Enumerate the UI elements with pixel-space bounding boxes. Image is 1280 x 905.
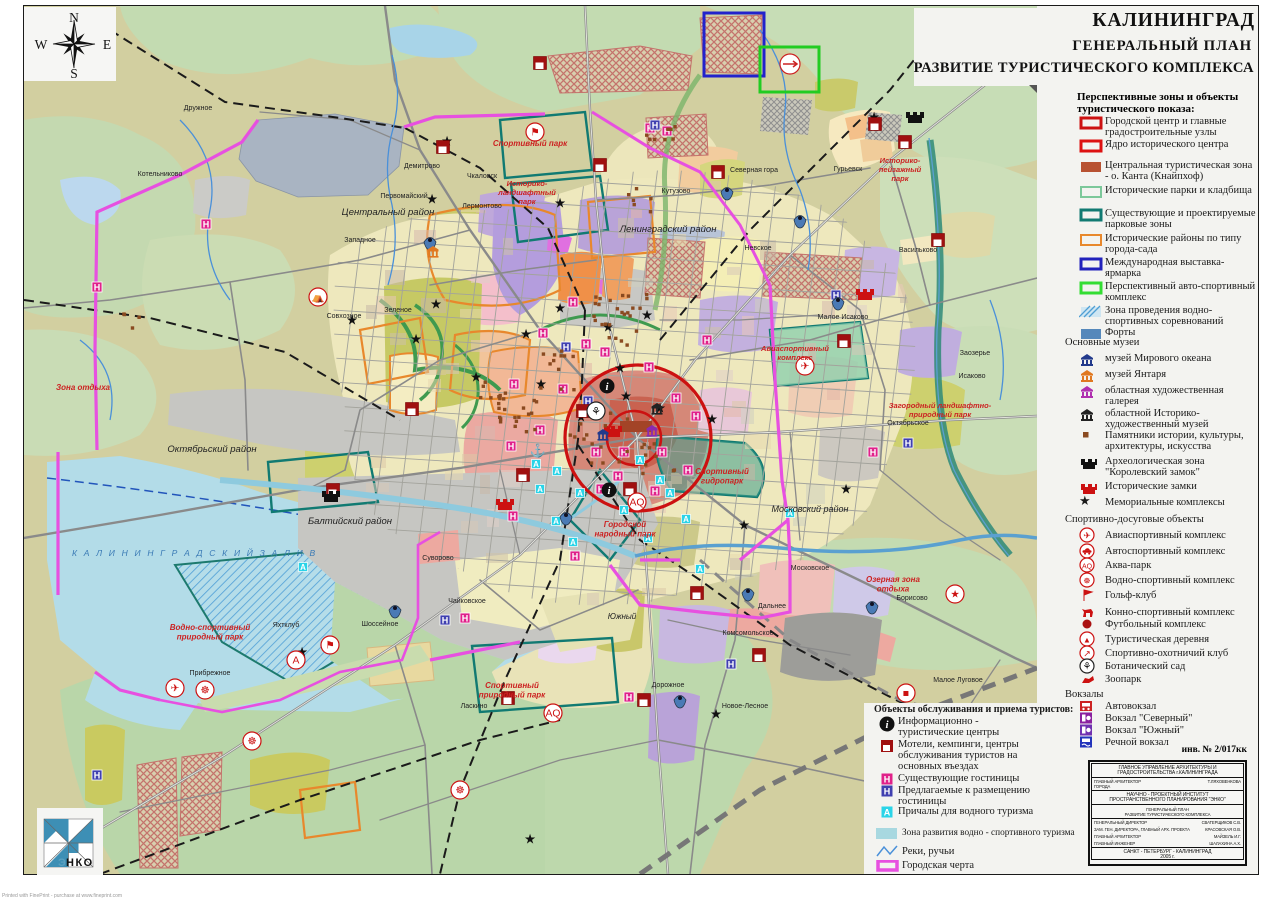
svg-text:H: H bbox=[508, 442, 515, 452]
svg-text:★: ★ bbox=[641, 308, 653, 323]
svg-text:★: ★ bbox=[524, 832, 536, 847]
svg-text:Шоссейное: Шоссейное bbox=[362, 620, 399, 628]
svg-text:H: H bbox=[693, 412, 700, 422]
svg-text:H: H bbox=[442, 616, 449, 626]
svg-text:Малое Луговое: Малое Луговое bbox=[933, 677, 983, 684]
svg-text:⚑: ⚑ bbox=[325, 640, 334, 651]
svg-text:Васильково: Васильково bbox=[899, 247, 937, 254]
svg-text:☸: ☸ bbox=[200, 685, 209, 696]
svg-text:H: H bbox=[537, 426, 544, 436]
svg-text:⚑: ⚑ bbox=[530, 127, 539, 138]
svg-text:Комсомольское: Комсомольское bbox=[723, 630, 774, 637]
svg-text:★: ★ bbox=[554, 301, 566, 316]
svg-text:природный парк: природный парк bbox=[177, 633, 244, 642]
svg-text:AQ: AQ bbox=[1082, 563, 1093, 570]
svg-text:H: H bbox=[883, 787, 890, 797]
svg-text:Дружное: Дружное bbox=[184, 105, 213, 112]
svg-text:A: A bbox=[657, 476, 663, 485]
svg-text:H: H bbox=[652, 121, 659, 131]
svg-text:A: A bbox=[683, 515, 689, 524]
svg-text:★: ★ bbox=[554, 196, 566, 211]
svg-text:Московское: Московское bbox=[791, 565, 830, 572]
svg-text:природный парк: природный парк bbox=[479, 691, 546, 700]
svg-text:☸: ☸ bbox=[455, 785, 464, 796]
svg-text:★: ★ bbox=[840, 482, 852, 497]
svg-text:H: H bbox=[462, 614, 469, 624]
svg-text:★: ★ bbox=[602, 320, 614, 335]
svg-text:AQ: AQ bbox=[630, 497, 645, 508]
svg-text:H: H bbox=[646, 363, 653, 373]
svg-text:A: A bbox=[621, 506, 627, 515]
svg-text:Совхозное: Совхозное bbox=[327, 313, 362, 320]
svg-text:отдыха: отдыха bbox=[877, 585, 910, 594]
svg-text:парк: парк bbox=[518, 197, 536, 206]
svg-text:H: H bbox=[203, 220, 210, 230]
svg-text:★: ★ bbox=[950, 589, 959, 600]
svg-text:Авиаспортивный: Авиаспортивный bbox=[760, 344, 829, 353]
svg-text:Историко-: Историко- bbox=[507, 179, 548, 188]
svg-text:Спортивный парк: Спортивный парк bbox=[493, 139, 568, 148]
svg-text:★: ★ bbox=[430, 297, 442, 312]
svg-text:Октябрьский район: Октябрьский район bbox=[167, 444, 257, 455]
svg-text:✈: ✈ bbox=[1083, 530, 1091, 540]
svg-text:⚘: ⚘ bbox=[591, 406, 601, 418]
svg-text:Исаково: Исаково bbox=[959, 373, 986, 380]
svg-text:H: H bbox=[511, 380, 518, 390]
svg-text:H: H bbox=[94, 283, 101, 293]
svg-text:H: H bbox=[659, 448, 666, 458]
svg-text:Ленинградский район: Ленинградский район bbox=[619, 224, 718, 235]
svg-text:Невское: Невское bbox=[744, 245, 771, 252]
svg-text:Кутузово: Кутузово bbox=[662, 188, 691, 195]
svg-text:★: ★ bbox=[426, 192, 438, 207]
svg-text:H: H bbox=[593, 448, 600, 458]
svg-text:A: A bbox=[637, 456, 643, 465]
svg-text:★: ★ bbox=[620, 389, 632, 404]
svg-text:A: A bbox=[667, 489, 673, 498]
svg-text:Дальнее: Дальнее bbox=[758, 603, 786, 610]
svg-text:H: H bbox=[626, 693, 633, 703]
svg-text:Западное: Западное bbox=[344, 237, 376, 244]
svg-text:комплекс: комплекс bbox=[777, 353, 813, 362]
svg-text:народный парк: народный парк bbox=[594, 530, 656, 539]
svg-text:H: H bbox=[905, 439, 912, 449]
svg-text:Демитрово: Демитрово bbox=[404, 163, 440, 170]
svg-text:H: H bbox=[652, 487, 659, 497]
svg-text:H: H bbox=[870, 448, 877, 458]
svg-text:природный парк: природный парк bbox=[909, 410, 972, 419]
svg-text:Южный: Южный bbox=[608, 612, 637, 621]
svg-text:★: ★ bbox=[614, 361, 626, 376]
svg-text:H: H bbox=[883, 775, 890, 785]
svg-text:☸: ☸ bbox=[247, 736, 256, 747]
svg-text:S: S bbox=[70, 66, 78, 81]
svg-text:Чкаловск: Чкаловск bbox=[467, 173, 498, 180]
svg-text:Московский район: Московский район bbox=[772, 504, 849, 514]
svg-text:Яхтклуб: Яхтклуб bbox=[273, 621, 300, 629]
svg-text:■: ■ bbox=[903, 688, 909, 699]
svg-text:Ласкино: Ласкино bbox=[461, 703, 488, 710]
svg-text:H: H bbox=[685, 466, 692, 476]
svg-text:Гурьевск: Гурьевск bbox=[834, 166, 863, 173]
svg-text:Загородный ландшафтно-: Загородный ландшафтно- bbox=[889, 401, 992, 410]
svg-text:☸: ☸ bbox=[1083, 576, 1090, 585]
svg-text:К А Л И Н И Н Г Р А Д С К И Й: К А Л И Н И Н Г Р А Д С К И Й З А Л И В bbox=[72, 547, 317, 558]
svg-text:Борисово: Борисово bbox=[896, 595, 927, 602]
svg-text:H: H bbox=[563, 343, 570, 353]
svg-text:AQ: AQ bbox=[546, 708, 561, 719]
svg-text:✈: ✈ bbox=[171, 683, 180, 694]
svg-text:▲: ▲ bbox=[1083, 635, 1091, 644]
svg-text:A: A bbox=[570, 538, 576, 547]
svg-text:Историко-: Историко- bbox=[880, 156, 921, 165]
svg-text:Северная гора: Северная гора bbox=[730, 167, 778, 174]
svg-text:H: H bbox=[94, 771, 101, 781]
svg-text:Спортивный: Спортивный bbox=[695, 467, 749, 476]
svg-text:Чайковское: Чайковское bbox=[448, 597, 486, 605]
svg-text:A: A bbox=[577, 489, 583, 498]
svg-text:Лермонтово: Лермонтово bbox=[462, 203, 502, 210]
svg-text:H: H bbox=[728, 660, 735, 670]
svg-text:Дорожное: Дорожное bbox=[652, 682, 685, 689]
svg-text:H: H bbox=[583, 340, 590, 350]
svg-text:H: H bbox=[570, 298, 577, 308]
svg-text:Спортивный: Спортивный bbox=[485, 681, 539, 690]
svg-text:Центральный район: Центральный район bbox=[342, 207, 436, 218]
svg-text:Котельниково: Котельниково bbox=[138, 171, 183, 178]
svg-text:Озерная зона: Озерная зона bbox=[866, 575, 920, 584]
svg-text:↗: ↗ bbox=[1083, 648, 1091, 658]
svg-text:A: A bbox=[553, 517, 559, 526]
svg-text:★: ★ bbox=[410, 332, 422, 347]
svg-text:★: ★ bbox=[738, 518, 750, 533]
svg-text:A: A bbox=[300, 563, 306, 572]
svg-text:H: H bbox=[602, 348, 609, 358]
svg-text:гидропарк: гидропарк bbox=[701, 477, 744, 486]
svg-text:A: A bbox=[537, 485, 543, 494]
svg-text:W: W bbox=[35, 37, 48, 52]
svg-text:H: H bbox=[704, 336, 711, 346]
svg-text:A: A bbox=[883, 808, 890, 818]
svg-text:H: H bbox=[540, 329, 547, 339]
svg-text:Первомайский: Первомайский bbox=[380, 192, 427, 200]
svg-text:ландшафтный: ландшафтный bbox=[497, 188, 556, 197]
svg-text:★: ★ bbox=[706, 412, 718, 427]
svg-text:H: H bbox=[510, 512, 517, 522]
svg-text:Городской: Городской bbox=[604, 520, 647, 529]
svg-text:A: A bbox=[697, 565, 703, 574]
svg-text:НКО: НКО bbox=[66, 857, 94, 869]
svg-text:Э: Э bbox=[58, 857, 66, 869]
svg-text:★: ★ bbox=[710, 707, 722, 722]
svg-text:A: A bbox=[293, 655, 300, 666]
svg-text:A: A bbox=[533, 460, 539, 469]
svg-text:✈: ✈ bbox=[801, 361, 810, 372]
svg-text:H: H bbox=[673, 394, 680, 404]
svg-text:Водно-спортивный: Водно-спортивный bbox=[170, 623, 251, 632]
svg-text:A: A bbox=[554, 467, 560, 476]
svg-text:Октябрьское: Октябрьское bbox=[887, 419, 929, 427]
svg-text:Малое Исаково: Малое Исаково bbox=[818, 314, 869, 321]
svg-text:Балтийский район: Балтийский район bbox=[308, 516, 393, 527]
svg-text:H: H bbox=[572, 552, 579, 562]
svg-text:★: ★ bbox=[470, 370, 482, 385]
svg-text:Суворово: Суворово bbox=[422, 555, 454, 562]
svg-text:Зона отдыха: Зона отдыха bbox=[56, 383, 111, 392]
svg-text:Новое-Лесное: Новое-Лесное bbox=[722, 703, 768, 710]
svg-text:⛺: ⛺ bbox=[312, 292, 325, 303]
svg-text:пейзажный: пейзажный bbox=[879, 165, 922, 174]
svg-text:парк: парк bbox=[891, 174, 909, 183]
svg-text:Прибрежное: Прибрежное bbox=[190, 669, 231, 677]
svg-text:H: H bbox=[615, 472, 622, 482]
svg-text:Зеленое: Зеленое bbox=[384, 307, 412, 314]
svg-text:⚓: ⚓ bbox=[530, 443, 546, 458]
svg-text:★: ★ bbox=[520, 327, 532, 342]
svg-text:Заозерье: Заозерье bbox=[960, 350, 990, 357]
svg-text:E: E bbox=[103, 37, 111, 52]
